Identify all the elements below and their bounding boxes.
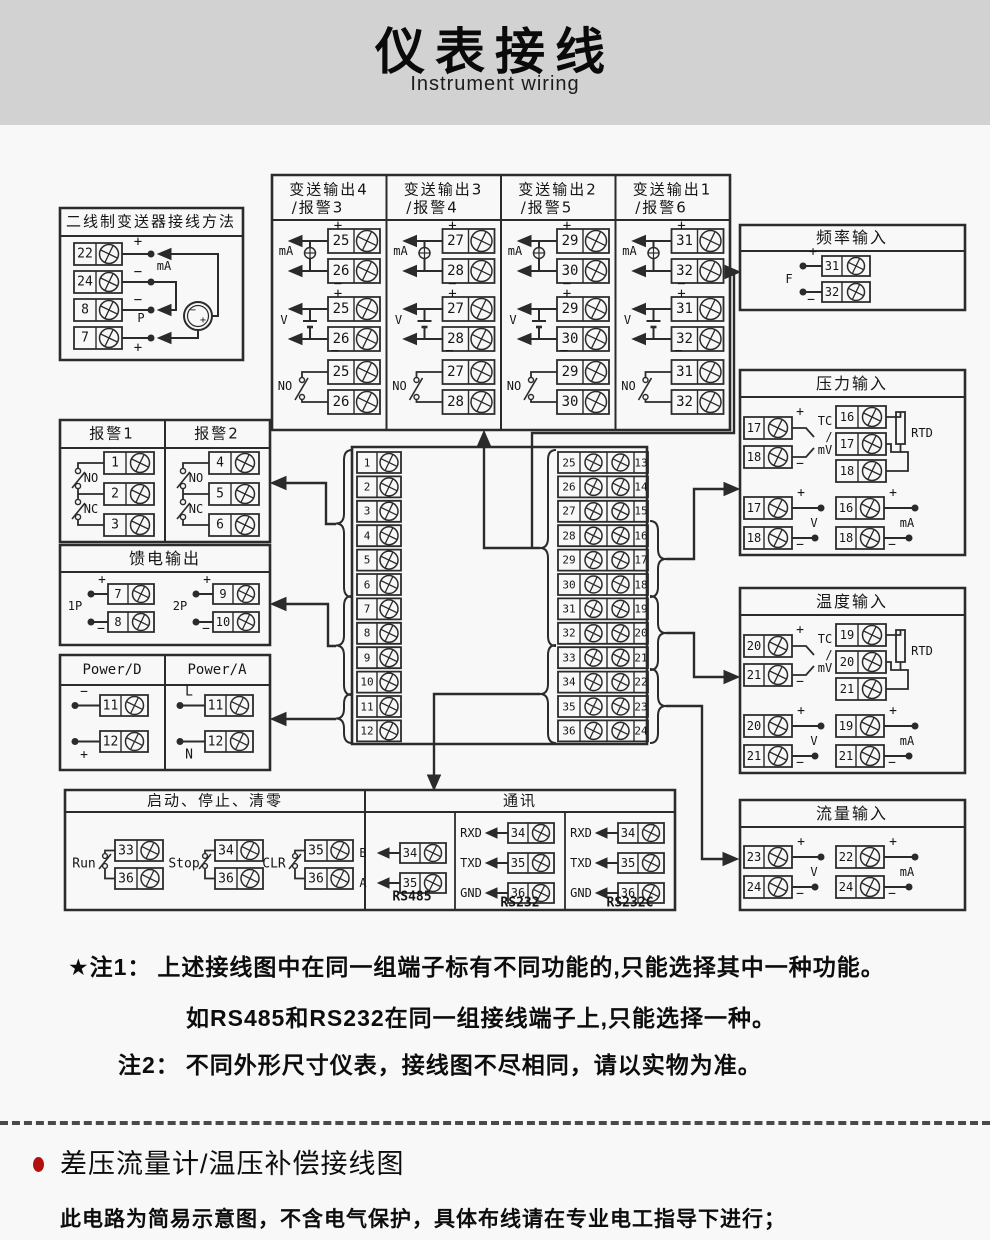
transmitter-output-columns-box [272,175,730,430]
note-1: ★注1：上述接线图中在同一组端子标有不同功能的,只能选择其中一种功能。 [68,948,885,982]
page: 仪表接线 Instrument wiring 二线制变送器接线方法222487+… [0,0,990,1240]
connector-wires [271,266,740,866]
center-terminal-block [336,447,666,744]
red-bullet-icon [33,1157,44,1172]
feed-output-box [60,545,270,645]
note-2: 注2：不同外形尺寸仪表，接线图不尽相同，请以实物为准。 [118,1046,762,1080]
note2-label: 注2： [118,1052,180,1078]
bottom-control-box [65,790,675,910]
note1-text: 上述接线图中在同一组端子标有不同功能的,只能选择其中一种功能。 [157,954,884,980]
frequency-input-box [740,225,965,310]
alarm-box [60,420,270,542]
note2-text: 不同外形尺寸仪表，接线图不尽相同，请以实物为准。 [186,1052,762,1078]
power-box [60,655,270,770]
pressure-input-box [740,370,965,555]
flow-input-box [740,800,965,910]
section2-heading: 差压流量计/温压补偿接线图 [60,1142,405,1181]
dashed-divider [0,1121,990,1125]
two-wire-transmitter-box [60,208,243,360]
section2-paragraph: 此电路为简易示意图，不含电气保护，具体布线请在专业电工指导下进行； [60,1203,786,1233]
temp-input-box [740,588,965,773]
note-1-line2: 如RS485和RS232在同一组接线端子上,只能选择一种。 [186,999,776,1033]
note1-label: ★注1： [68,954,151,980]
